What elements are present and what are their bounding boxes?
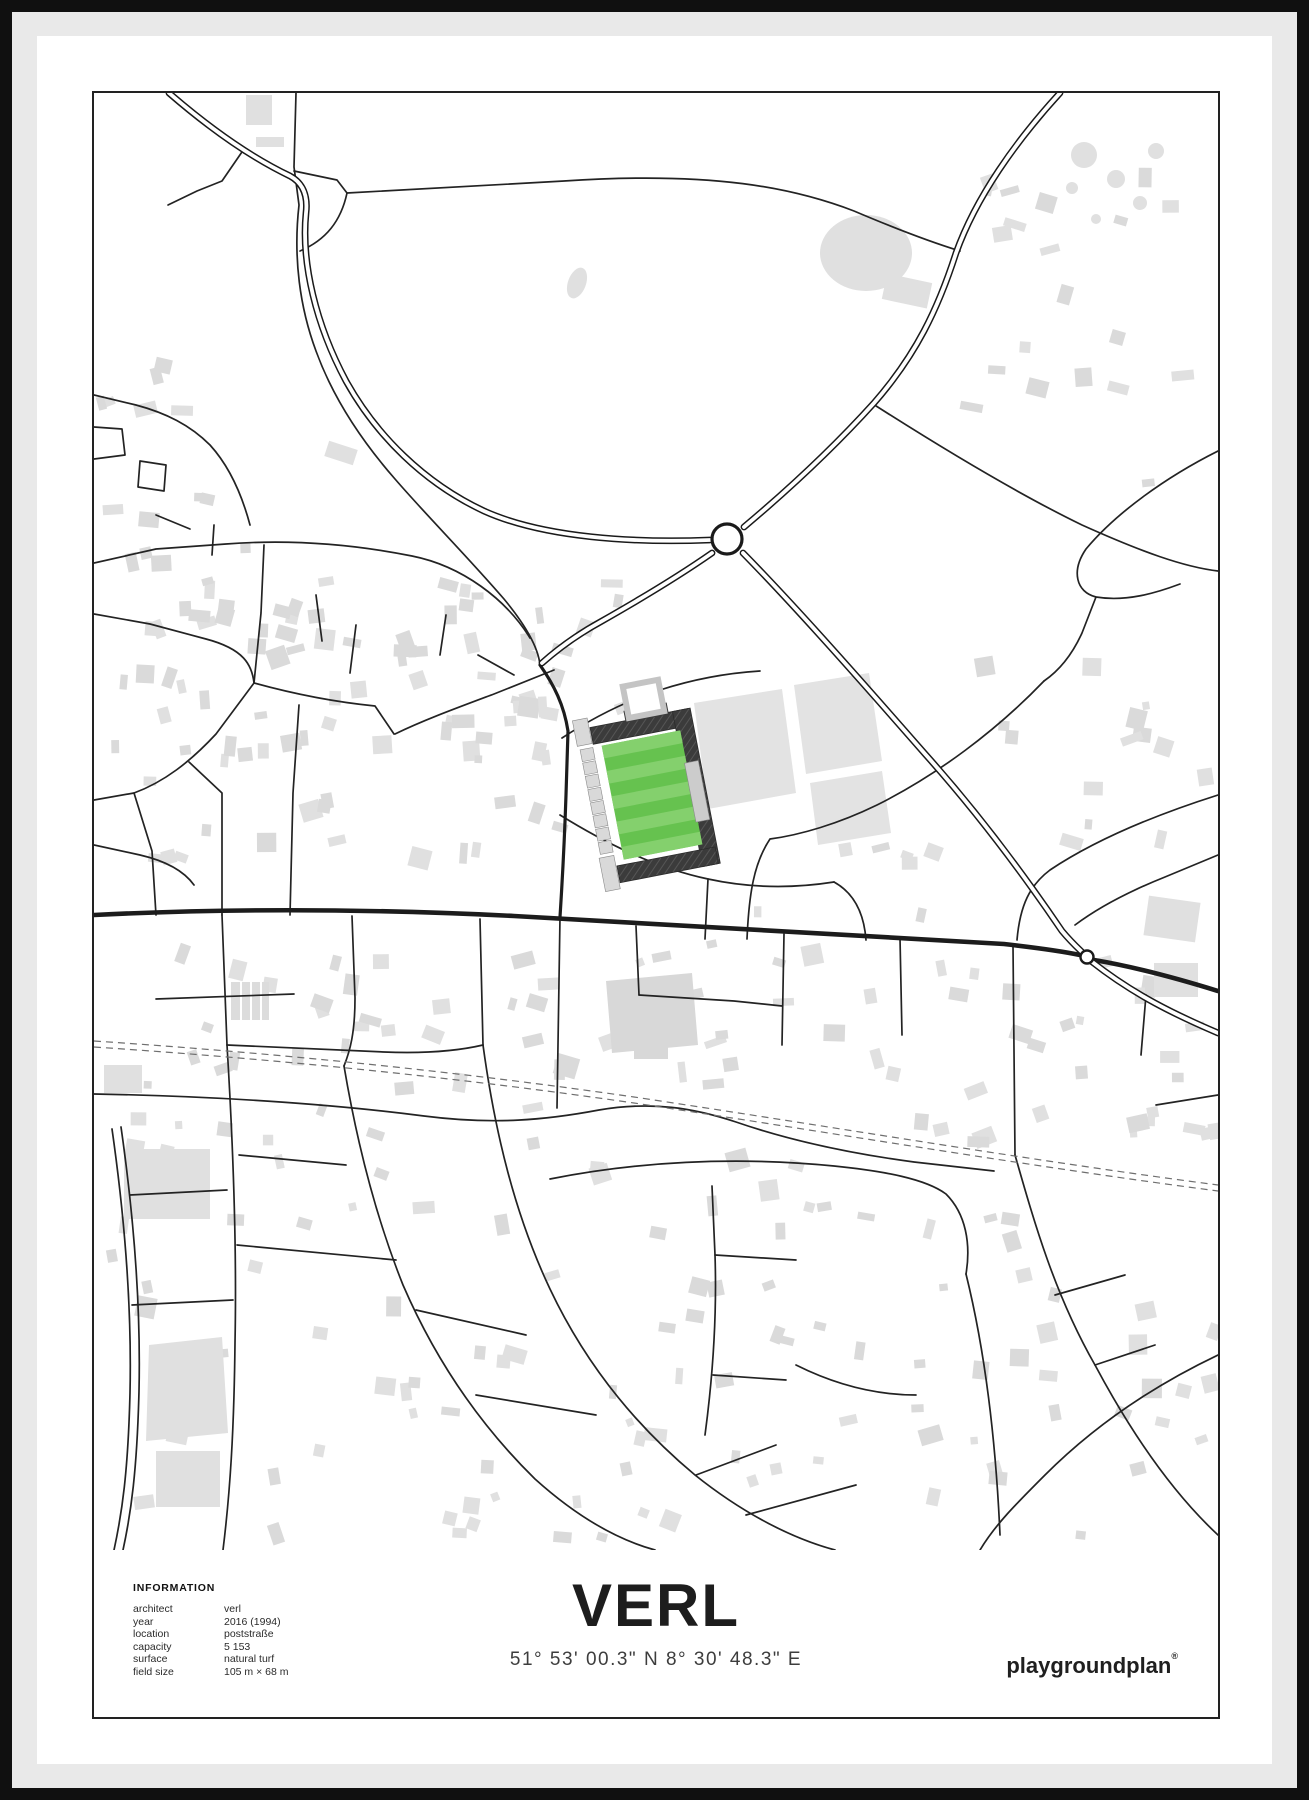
- building-footprint: [1048, 1404, 1061, 1422]
- building-footprint: [258, 743, 269, 758]
- page-title: VERL: [94, 1571, 1218, 1640]
- building-footprint: [572, 1495, 581, 1508]
- building-footprint: [111, 740, 119, 753]
- building-footprint: [296, 1217, 313, 1231]
- building-footprint: [136, 664, 155, 683]
- building-footprint: [472, 592, 484, 599]
- building-footprint: [176, 679, 187, 694]
- building-footprint: [471, 842, 481, 858]
- building-footprint: [923, 842, 944, 862]
- building-footprint: [350, 681, 367, 699]
- building-footprint: [386, 1296, 401, 1316]
- building-footprint: [1172, 1073, 1184, 1083]
- building-footprint: [274, 1154, 285, 1169]
- building-footprint: [1005, 730, 1019, 745]
- building-footprint: [228, 959, 247, 982]
- building-footprint: [373, 1167, 389, 1181]
- building-footprint: [960, 401, 984, 413]
- building-footprint: [343, 637, 362, 648]
- building-footprint: [437, 577, 459, 593]
- main-street: [94, 910, 1080, 955]
- building-footprint: [1059, 1018, 1075, 1033]
- building-footprint: [1075, 1530, 1086, 1539]
- building-footprint: [103, 504, 124, 515]
- building-footprint: [151, 555, 172, 572]
- building-footprint: [481, 1460, 494, 1474]
- building-footprint: [758, 1179, 779, 1202]
- building-footprint: [314, 628, 336, 651]
- building-footprint: [224, 736, 237, 757]
- building-footprint: [1036, 1321, 1058, 1343]
- building-footprint: [1197, 768, 1214, 787]
- building-footprint: [321, 716, 337, 732]
- poster-frame: INFORMATION architect verl year 2016 (19…: [0, 0, 1309, 1800]
- building-footprint: [407, 846, 432, 870]
- building-footprint: [915, 907, 926, 923]
- building-footprint: [926, 1487, 941, 1506]
- building-footprint: [869, 1048, 884, 1070]
- building-footprint: [286, 643, 305, 655]
- building-footprint: [1109, 329, 1126, 346]
- building-footprint: [706, 939, 717, 949]
- building-footprint: [318, 576, 334, 587]
- building-footprint: [637, 1507, 649, 1519]
- building-footprint: [240, 543, 251, 553]
- building-footprint: [914, 1113, 929, 1131]
- building-footprint: [967, 1136, 989, 1148]
- brand-logo: playgroundplan®: [1006, 1651, 1178, 1679]
- building-footprint: [263, 1135, 273, 1146]
- building-footprint: [494, 795, 516, 809]
- street-map-area: [94, 93, 1218, 1550]
- building-footprint: [374, 1377, 396, 1396]
- building-footprint: [496, 1355, 510, 1369]
- building-footprint: [131, 1112, 147, 1125]
- building-footprint: [408, 670, 428, 690]
- building-footprint: [475, 732, 492, 745]
- industrial-block: [810, 771, 891, 845]
- building-footprint: [1075, 1066, 1088, 1080]
- building-footprint: [886, 1066, 902, 1082]
- building-footprint: [1002, 983, 1020, 1000]
- building-footprint: [237, 747, 253, 762]
- building-footprint: [838, 842, 853, 857]
- building-footprint: [373, 954, 389, 969]
- building-footprint: [463, 632, 480, 654]
- building-footprint: [188, 609, 210, 623]
- building-footprint: [1155, 1416, 1170, 1428]
- building-footprint: [620, 1461, 633, 1476]
- building-footprint: [1135, 1301, 1157, 1322]
- building-footprint: [857, 1212, 875, 1222]
- building-footprint: [715, 1030, 728, 1040]
- building-footprint: [268, 1467, 281, 1485]
- building-footprint: [227, 1214, 244, 1226]
- building-footprint: [974, 656, 996, 678]
- building-footprint: [1154, 830, 1167, 850]
- building-footprint: [1010, 1349, 1029, 1367]
- railway-line: [94, 1041, 1218, 1191]
- building-footprint: [675, 1368, 683, 1385]
- building-footprint: [538, 696, 548, 717]
- building-footprint: [526, 993, 548, 1012]
- building-footprint: [1000, 185, 1020, 197]
- building-footprint: [1142, 478, 1155, 487]
- building-footprint: [725, 1148, 751, 1173]
- building-footprint: [964, 1081, 988, 1100]
- registered-mark: ®: [1171, 1651, 1178, 1661]
- building-footprint: [308, 608, 326, 624]
- building-footprint: [1126, 1113, 1150, 1133]
- building-footprint: [511, 951, 536, 970]
- building-footprint: [685, 1309, 704, 1324]
- building-footprint: [918, 1424, 944, 1446]
- building-footprint: [914, 1359, 926, 1368]
- building-footprint: [517, 696, 541, 719]
- building-footprint: [214, 1061, 233, 1076]
- building-footprint: [659, 1509, 682, 1533]
- building-footprint: [970, 1437, 978, 1445]
- building-footprint: [327, 834, 346, 847]
- building-footprint: [442, 1511, 458, 1527]
- building-footprint: [465, 1516, 480, 1532]
- building-footprint: [817, 1201, 832, 1212]
- building-footprint: [1035, 192, 1058, 214]
- building-footprint: [477, 672, 496, 681]
- building-footprint: [1015, 1267, 1032, 1283]
- building-footprint: [1084, 782, 1103, 796]
- building-footprint: [408, 1377, 420, 1389]
- building-footprint: [1153, 736, 1174, 758]
- poster-content: INFORMATION architect verl year 2016 (19…: [92, 91, 1220, 1719]
- building-footprint: [490, 1492, 500, 1503]
- building-footprint: [923, 1218, 936, 1239]
- building-footprint: [366, 1127, 385, 1141]
- building-footprint: [106, 1249, 118, 1263]
- building-footprint: [658, 1322, 676, 1334]
- building-footprint: [440, 722, 452, 741]
- building-footprint: [1129, 1461, 1146, 1477]
- building-footprint: [522, 1033, 544, 1049]
- building-footprint: [528, 802, 546, 825]
- building-footprint: [1002, 1230, 1022, 1253]
- building-footprint: [813, 1456, 824, 1464]
- building-footprint: [133, 401, 158, 418]
- building-footprint: [394, 1081, 414, 1096]
- building-footprint: [329, 691, 341, 706]
- building-footprint: [596, 1532, 608, 1543]
- building-footprint: [175, 1121, 183, 1129]
- building-footprint: [174, 943, 191, 965]
- building-footprint: [507, 997, 517, 1011]
- building-footprint: [702, 1078, 724, 1090]
- building-footprint: [871, 842, 890, 853]
- building-footprint: [412, 1201, 435, 1214]
- building-footprint: [553, 1531, 572, 1543]
- building-footprint: [157, 706, 172, 724]
- building-footprint: [133, 1494, 155, 1510]
- building-footprint: [972, 1360, 989, 1380]
- building-footprint: [775, 1223, 785, 1240]
- building-footprint: [1138, 168, 1151, 188]
- building-footprint: [494, 1214, 510, 1236]
- pond-shape: [563, 265, 591, 301]
- building-footprint: [1082, 658, 1101, 676]
- building-footprint: [754, 906, 761, 917]
- building-footprint: [452, 714, 475, 728]
- building-footprint: [1039, 1370, 1058, 1382]
- building-footprint: [864, 988, 878, 1005]
- building-footprint: [1027, 1038, 1047, 1054]
- building-footprint: [1107, 381, 1130, 396]
- building-footprint: [601, 579, 623, 588]
- building-footprint: [1076, 1016, 1085, 1025]
- building-footprint: [988, 365, 1006, 374]
- building-footprint: [1019, 341, 1031, 353]
- building-footprint: [988, 1471, 1007, 1486]
- building-footprint: [1206, 1322, 1218, 1341]
- roundabout: [712, 524, 742, 554]
- building-footprint: [538, 977, 560, 990]
- building-footprint: [839, 1414, 858, 1427]
- building-footprint: [280, 733, 302, 753]
- building-footprint: [1074, 367, 1092, 387]
- street-map: [94, 93, 1218, 1550]
- building-footprint: [746, 1474, 759, 1488]
- building-footprint: [267, 1522, 285, 1546]
- mini-roundabout: [1081, 951, 1094, 964]
- building-footprint: [544, 1269, 560, 1281]
- building-footprint: [310, 993, 334, 1013]
- building-footprint: [911, 1404, 924, 1412]
- building-footprint: [522, 1102, 543, 1114]
- building-footprint: [171, 405, 193, 416]
- building-footprint: [1175, 1383, 1192, 1399]
- building-footprint: [1195, 1434, 1209, 1445]
- building-footprint: [257, 833, 276, 852]
- building-footprint: [343, 973, 360, 995]
- industrial-block: [694, 689, 796, 809]
- building-footprint: [317, 799, 332, 814]
- building-footprint: [823, 1024, 845, 1041]
- building-footprint: [688, 1276, 710, 1297]
- building-footprint: [935, 960, 947, 977]
- building-footprint: [649, 1226, 667, 1241]
- building-footprint: [119, 674, 128, 689]
- building-footprint: [462, 1497, 480, 1515]
- building-footprint: [1032, 1104, 1050, 1123]
- building-footprint: [504, 716, 516, 727]
- building-footprint: [421, 1025, 445, 1045]
- building-footprint: [933, 1122, 950, 1137]
- building-footprint: [194, 493, 202, 502]
- building-footprint: [762, 1279, 776, 1291]
- building-footprint: [254, 711, 267, 720]
- building-footprint: [1059, 833, 1084, 851]
- building-footprint: [854, 1341, 866, 1360]
- building-footprint: [992, 225, 1013, 243]
- building-footprint: [141, 1280, 153, 1294]
- building-footprint: [459, 843, 468, 864]
- building-footprint: [1171, 369, 1194, 381]
- building-footprint: [187, 1049, 201, 1065]
- building-footprint: [939, 1283, 948, 1291]
- building-footprint: [459, 583, 471, 598]
- building-footprint: [722, 1057, 739, 1073]
- building-footprint: [201, 1021, 214, 1033]
- building-footprint: [800, 943, 824, 967]
- building-footprint: [161, 666, 178, 689]
- building-footprint: [554, 1059, 565, 1080]
- building-footprint: [948, 987, 969, 1003]
- building-footprint: [1162, 200, 1179, 213]
- building-footprint: [372, 735, 392, 754]
- building-footprint: [1160, 1051, 1179, 1063]
- building-footprint: [201, 824, 211, 837]
- building-footprint: [902, 857, 918, 870]
- building-footprint: [329, 955, 342, 972]
- building-footprint: [409, 1408, 418, 1419]
- building-footprint: [459, 598, 475, 612]
- brand-text: playgroundplan: [1006, 1653, 1171, 1678]
- building-footprint: [474, 755, 482, 763]
- building-footprint: [432, 998, 451, 1015]
- building-footprint: [677, 1061, 687, 1082]
- building-footprint: [625, 1417, 634, 1427]
- building-footprint: [1056, 284, 1074, 306]
- building-footprint: [452, 1528, 467, 1539]
- building-footprint: [1201, 1373, 1218, 1394]
- building-footprint: [199, 690, 210, 709]
- garages-shape: [231, 982, 269, 1020]
- building-footprint: [527, 1137, 541, 1151]
- building-footprint: [1114, 1405, 1132, 1421]
- building-footprint: [547, 667, 565, 688]
- building-footprint: [1129, 1334, 1148, 1355]
- building-footprint: [1120, 731, 1144, 747]
- building-footprint: [1125, 707, 1147, 731]
- building-footprint: [813, 1321, 826, 1331]
- building-footprint: [535, 607, 544, 624]
- building-footprint: [803, 1201, 815, 1213]
- building-footprint: [247, 1259, 263, 1274]
- building-footprint: [474, 1345, 486, 1359]
- building-footprint: [313, 1444, 326, 1458]
- building-footprint: [381, 1024, 396, 1037]
- building-footprint: [983, 1213, 997, 1223]
- field-shape: [146, 1337, 228, 1441]
- building-footprint: [1001, 1212, 1020, 1227]
- building-footprint: [1084, 819, 1092, 830]
- building-footprint: [770, 1462, 783, 1475]
- building-footprint: [312, 1326, 328, 1340]
- building-footprint: [275, 624, 298, 643]
- building-footprint: [300, 730, 309, 746]
- building-footprint: [179, 745, 191, 756]
- building-footprint: [138, 511, 160, 528]
- building-footprint: [788, 1159, 805, 1172]
- building-footprint: [144, 1081, 152, 1089]
- building-footprint: [969, 968, 979, 980]
- building-footprint: [1113, 215, 1128, 227]
- building-footprints: [96, 168, 1218, 1546]
- sports-field: [124, 1149, 210, 1219]
- building-footprint: [1142, 701, 1150, 710]
- building-footprint: [1040, 243, 1061, 256]
- building-footprint: [652, 951, 672, 963]
- building-footprint: [1025, 377, 1049, 398]
- building-footprint: [441, 1407, 460, 1417]
- building-footprint: [348, 1202, 357, 1211]
